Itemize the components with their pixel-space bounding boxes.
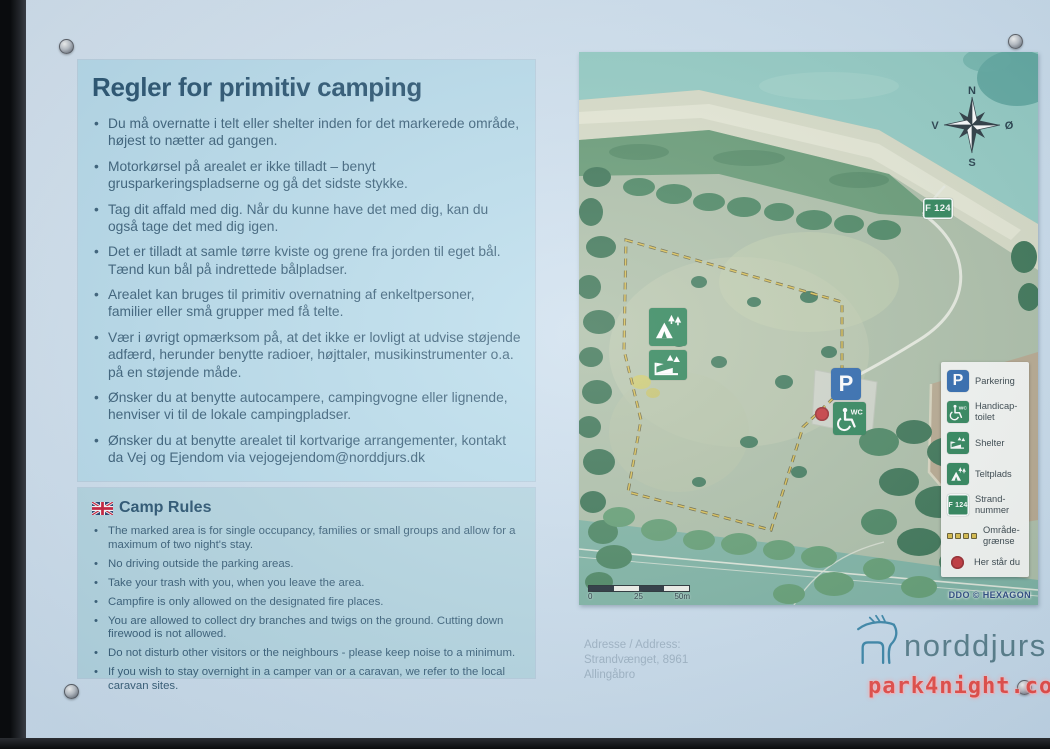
sign-frame-bottom-edge bbox=[0, 738, 1050, 749]
you-are-here-icon bbox=[951, 556, 964, 569]
parking-icon: P bbox=[947, 370, 969, 392]
screw-icon bbox=[59, 39, 74, 54]
norddjurs-wordmark: norddjurs bbox=[904, 628, 1047, 666]
handicap-toilet-sign: WC bbox=[833, 402, 866, 435]
shelter-icon bbox=[947, 432, 969, 454]
aerial-map: N S Ø V F 124 bbox=[579, 52, 1038, 605]
rule-item: Ønsker du at benytte autocampere, campin… bbox=[92, 389, 521, 424]
norddjurs-logo: norddjurs bbox=[852, 610, 1047, 666]
danish-rules-list: Du må overnatte i telt eller shelter ind… bbox=[92, 115, 521, 466]
address-block: Adresse / Address: Strandvænget, 8961 Al… bbox=[584, 638, 688, 684]
park4night-watermark: park4night.com bbox=[868, 674, 1050, 699]
compass-east-label: Ø bbox=[1005, 120, 1014, 132]
rule-item: No driving outside the parking areas. bbox=[92, 558, 521, 572]
legend-item-beach-number: F 124 Strand- nummer bbox=[947, 494, 1023, 516]
english-title: Camp Rules bbox=[119, 499, 211, 517]
english-rules-list: The marked area is for single occupancy,… bbox=[92, 525, 521, 694]
rule-item: The marked area is for single occupancy,… bbox=[92, 525, 521, 553]
boundary-dash-icon bbox=[947, 533, 977, 539]
rule-item: Campfire is only allowed on the designat… bbox=[92, 596, 521, 610]
compass-west-label: V bbox=[931, 120, 939, 132]
legend-item-area-boundary: Område- grænse bbox=[947, 525, 1023, 547]
deer-icon bbox=[852, 610, 900, 666]
legend-item-you-are-here: Her står du bbox=[947, 556, 1023, 569]
scale-end: 50m bbox=[674, 592, 690, 601]
legend-item-shelter: Shelter bbox=[947, 432, 1023, 454]
rule-item: Arealet kan bruges til primitiv overnatn… bbox=[92, 286, 521, 321]
rule-item: Du må overnatte i telt eller shelter ind… bbox=[92, 115, 521, 150]
parking-sign: P bbox=[831, 368, 861, 400]
shelter-sign bbox=[649, 350, 687, 380]
english-rules-panel: Camp Rules The marked area is for single… bbox=[78, 488, 535, 678]
rule-item: Motorkørsel på arealet er ikke tilladt –… bbox=[92, 158, 521, 193]
screw-icon bbox=[64, 684, 79, 699]
tent-icon bbox=[947, 463, 969, 485]
legend-item-handicap-toilet: WC Handicap- toilet bbox=[947, 401, 1023, 423]
you-are-here-dot bbox=[815, 407, 829, 421]
compass-icon: N S Ø V bbox=[926, 85, 1018, 169]
svg-text:WC: WC bbox=[959, 405, 967, 411]
camping-sign-board: Regler for primitiv camping Du må overna… bbox=[26, 0, 1050, 738]
rule-item: If you wish to stay overnight in a campe… bbox=[92, 666, 521, 694]
beach-number-icon: F 124 bbox=[947, 494, 969, 516]
rule-item: You are allowed to collect dry branches … bbox=[92, 615, 521, 643]
legend-item-tent: Teltplads bbox=[947, 463, 1023, 485]
rule-item: Take your trash with you, when you leave… bbox=[92, 577, 521, 591]
tent-site-sign bbox=[649, 308, 687, 346]
rule-item: Tag dit affald med dig. Når du kunne hav… bbox=[92, 201, 521, 236]
scale-mid: 25 bbox=[634, 592, 643, 601]
rule-item: Det er tilladt at samle tørre kviste og … bbox=[92, 243, 521, 278]
danish-rules-panel: Regler for primitiv camping Du må overna… bbox=[78, 60, 535, 481]
address-street: Strandvænget, 8961 bbox=[584, 653, 688, 668]
uk-flag-icon bbox=[92, 502, 113, 515]
map-credit: DDO © HEXAGON bbox=[949, 590, 1031, 600]
handicap-toilet-icon: WC bbox=[947, 401, 969, 423]
legend-item-parking: P Parkering bbox=[947, 370, 1023, 392]
beach-number-sign: F 124 bbox=[923, 198, 953, 219]
map-legend: P Parkering WC Handicap- toilet bbox=[941, 362, 1029, 577]
rule-item: Do not disturb other visitors or the nei… bbox=[92, 647, 521, 661]
danish-title: Regler for primitiv camping bbox=[92, 72, 521, 103]
address-city: Allingåbro bbox=[584, 668, 688, 683]
photo-of-sign: Regler for primitiv camping Du må overna… bbox=[0, 0, 1050, 749]
screw-icon bbox=[1008, 34, 1023, 49]
rule-item: Ønsker du at benytte arealet til kortvar… bbox=[92, 432, 521, 467]
compass-north-label: N bbox=[968, 85, 976, 97]
compass-south-label: S bbox=[968, 157, 975, 169]
svg-text:WC: WC bbox=[851, 408, 863, 417]
rule-item: Vær i øvrigt opmærksom på, at det ikke e… bbox=[92, 329, 521, 381]
scale-zero: 0 bbox=[588, 592, 592, 601]
sign-frame-left-edge bbox=[0, 0, 26, 749]
scale-bar: 0 25 50m bbox=[588, 585, 690, 602]
address-label: Adresse / Address: bbox=[584, 638, 688, 653]
